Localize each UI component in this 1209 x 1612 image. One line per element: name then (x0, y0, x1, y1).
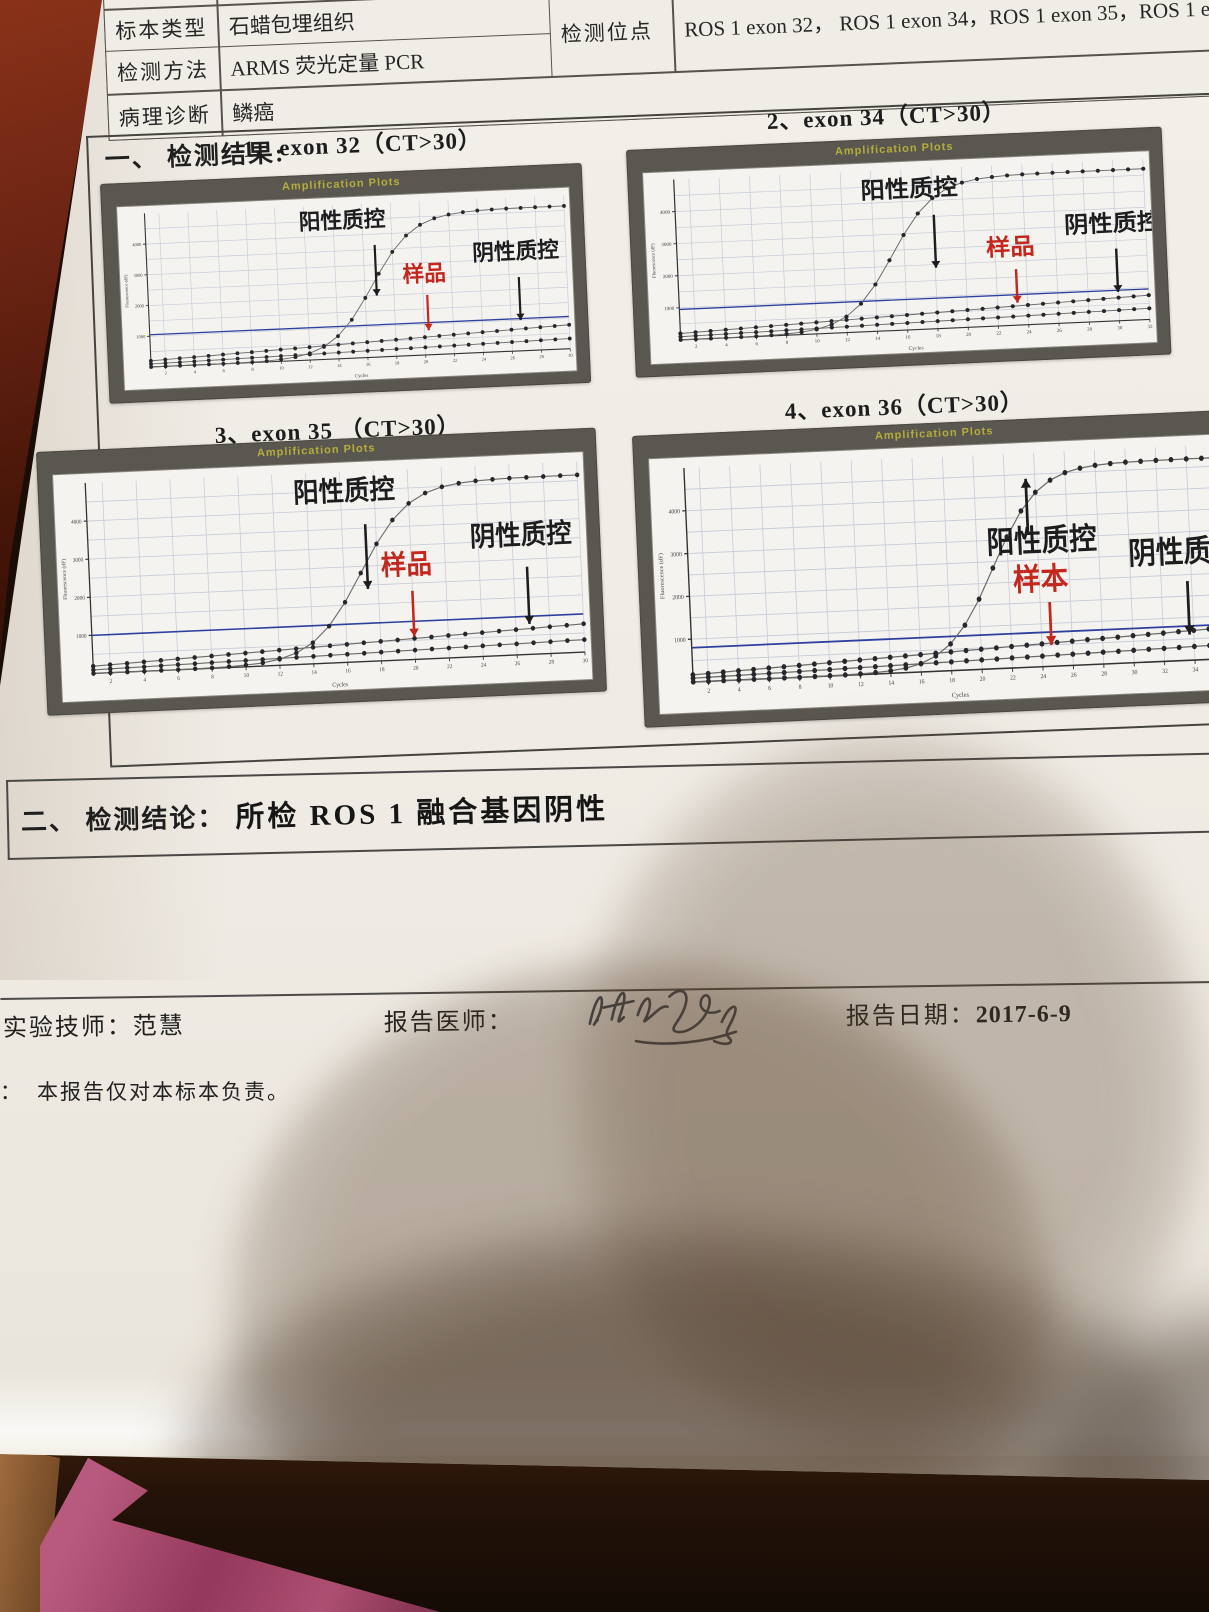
svg-text:Fluorescence (dF): Fluorescence (dF) (60, 558, 69, 600)
svg-text:16: 16 (919, 679, 925, 686)
svg-text:28: 28 (1101, 671, 1107, 678)
svg-text:4000: 4000 (71, 519, 82, 526)
plot3-area: 1000200030004000246810121416182022242628… (53, 452, 592, 702)
svg-text:30: 30 (568, 353, 573, 358)
annotation-样品: 样品 (380, 548, 435, 638)
svg-text:18: 18 (936, 334, 942, 339)
svg-text:10: 10 (815, 339, 821, 344)
svg-text:10: 10 (244, 673, 250, 679)
svg-text:30: 30 (1132, 670, 1138, 677)
svg-text:阴性质控: 阴性质控 (469, 517, 572, 552)
svg-text:阳性质控: 阳性质控 (293, 473, 396, 508)
svg-text:8: 8 (251, 367, 254, 372)
annotation-阳性质控: 阳性质控 (860, 173, 962, 271)
svg-text:4: 4 (143, 677, 146, 683)
svg-text:26: 26 (510, 355, 515, 360)
svg-text:2: 2 (695, 345, 698, 350)
svg-text:22: 22 (1010, 675, 1016, 682)
svg-text:2000: 2000 (672, 595, 684, 602)
svg-text:样品: 样品 (402, 260, 446, 287)
chart4-title: exon 36（CT>30） (821, 389, 1025, 422)
svg-text:阴性质控: 阴性质控 (472, 237, 560, 266)
chart1-title: exon 32（CT>30） (279, 127, 483, 160)
chart4-number: 4、 (784, 398, 821, 424)
plot4-svg: 1000200030004000246810121416182022242628… (649, 434, 1209, 714)
svg-text:6: 6 (755, 342, 758, 347)
report-date-value: 2017-6-9 (976, 1001, 1072, 1028)
svg-text:2: 2 (109, 679, 112, 685)
amplification-plot-slide-2: Amplification Plots 10002000300040002468… (626, 127, 1171, 378)
svg-text:Cycles: Cycles (908, 345, 923, 351)
field-test-sites-label: 检测位点 (549, 0, 674, 76)
svg-text:8: 8 (211, 674, 214, 680)
svg-text:阴性质控: 阴性质控 (1064, 208, 1157, 239)
svg-text:24: 24 (481, 357, 486, 362)
svg-text:样本: 样本 (1012, 560, 1069, 598)
physician-field: 报告医师： (384, 1001, 514, 1038)
footer-row: 实验技师：范慧 报告医师： 报告日期：2017-6-9 (0, 951, 1209, 1078)
svg-text:2: 2 (165, 370, 168, 375)
svg-text:14: 14 (311, 670, 317, 676)
svg-text:6: 6 (177, 676, 180, 682)
report-date-label: 报告日期： (846, 1002, 976, 1030)
svg-text:Fluorescence (dF): Fluorescence (dF) (651, 243, 658, 278)
svg-text:2000: 2000 (74, 595, 85, 602)
svg-text:阳性质控: 阳性质控 (860, 173, 959, 204)
svg-text:22: 22 (453, 358, 458, 363)
svg-text:8: 8 (786, 341, 789, 346)
svg-text:3000: 3000 (661, 243, 672, 248)
svg-text:28: 28 (549, 659, 555, 665)
svg-text:12: 12 (858, 682, 864, 689)
svg-text:1000: 1000 (674, 638, 686, 645)
photo-of-lab-report: 科别 送检医师 标本类型 石蜡包埋组织 检测位点 ROS 1 exon 32， … (0, 0, 1209, 1612)
svg-text:3000: 3000 (134, 273, 144, 278)
svg-text:16: 16 (345, 668, 351, 674)
svg-text:1000: 1000 (136, 334, 146, 339)
svg-text:14: 14 (875, 337, 881, 342)
svg-text:12: 12 (278, 671, 284, 677)
svg-text:阳性质控: 阳性质控 (298, 206, 386, 235)
svg-text:4000: 4000 (132, 242, 142, 247)
svg-text:28: 28 (539, 354, 544, 359)
svg-text:2000: 2000 (135, 303, 145, 308)
svg-text:26: 26 (515, 661, 521, 667)
svg-text:18: 18 (949, 678, 955, 685)
svg-text:2: 2 (707, 689, 710, 695)
svg-text:2000: 2000 (663, 275, 674, 280)
svg-text:4000: 4000 (660, 211, 671, 216)
svg-text:样品: 样品 (380, 548, 432, 581)
conclusion-label: 二、 检测结论： (20, 797, 225, 839)
chart1-number: 1、 (242, 136, 279, 162)
footnote-text: 本报告仅对本标本负责。 (37, 1080, 290, 1104)
annotation-阴性质控: 阴性质控 (469, 517, 575, 626)
svg-text:Cycles: Cycles (952, 691, 970, 699)
technician-field: 实验技师：范慧 (3, 1005, 185, 1043)
svg-text:Fluorescence (dF): Fluorescence (dF) (123, 274, 129, 308)
svg-text:Cycles: Cycles (355, 374, 369, 380)
svg-text:26: 26 (1071, 673, 1077, 680)
svg-text:4: 4 (194, 369, 197, 374)
svg-text:1000: 1000 (76, 633, 87, 640)
svg-text:12: 12 (845, 338, 851, 343)
plot2-area: 1000200030004000246810121416182022242628… (643, 151, 1157, 364)
svg-text:16: 16 (366, 362, 371, 367)
svg-text:20: 20 (980, 676, 986, 683)
svg-text:4: 4 (725, 343, 728, 348)
svg-text:Cycles: Cycles (332, 682, 349, 689)
svg-text:26: 26 (1057, 329, 1063, 334)
field-method-label: 检测方法 (106, 47, 220, 93)
amplification-plot-slide-1: Amplification Plots 10002000300040002468… (100, 163, 591, 404)
svg-text:20: 20 (966, 333, 972, 338)
paper-bottom-edge-highlight (0, 1372, 1209, 1456)
plot2-svg: 1000200030004000246810121416182022242628… (643, 151, 1157, 364)
svg-text:18: 18 (379, 667, 385, 673)
threshold-line (92, 614, 583, 635)
annotation-阴性质控: 阴性质控 (1064, 208, 1157, 294)
svg-text:20: 20 (424, 359, 429, 364)
plot1-area: 1000200030004000246810121416182022242628… (117, 188, 577, 391)
series-样品 (148, 323, 572, 363)
svg-text:3000: 3000 (670, 552, 682, 559)
svg-text:1000: 1000 (664, 307, 675, 312)
svg-text:16: 16 (905, 336, 911, 341)
annotation-阴性质控: 阴性质控 (472, 237, 562, 322)
svg-text:4000: 4000 (669, 509, 681, 516)
plot4-area: 1000200030004000246810121416182022242628… (649, 434, 1209, 714)
svg-text:样品: 样品 (985, 232, 1035, 261)
plot3-svg: 1000200030004000246810121416182022242628… (53, 452, 592, 702)
svg-text:20: 20 (413, 665, 419, 671)
field-specimen-type-label: 标本类型 (105, 6, 219, 50)
threshold-line (150, 316, 569, 334)
svg-text:10: 10 (828, 683, 834, 690)
footnote: ：本报告仅对本标本负责。 (0, 1076, 290, 1106)
plot1-svg: 1000200030004000246810121416182022242628… (117, 188, 577, 391)
annotation-样品: 样品 (402, 260, 448, 331)
svg-text:阳性质控: 阳性质控 (986, 521, 1098, 560)
svg-text:24: 24 (1026, 330, 1032, 335)
conclusion-text: 所检 ROS 1 融合基因阴性 (235, 785, 609, 835)
svg-text:30: 30 (583, 658, 589, 664)
svg-text:24: 24 (1040, 674, 1046, 681)
svg-text:18: 18 (395, 360, 400, 365)
svg-text:28: 28 (1087, 328, 1093, 333)
chart2-number: 2、 (766, 108, 803, 134)
svg-text:32: 32 (1148, 325, 1154, 330)
footnote-prefix: ： (0, 1080, 23, 1104)
technician-name: 范慧 (133, 1013, 185, 1040)
amplification-plot-slide-4: Amplification Plots 10002000300040002468… (632, 410, 1209, 728)
physician-label: 报告医师： (384, 1009, 514, 1037)
svg-text:30: 30 (1117, 326, 1123, 331)
svg-text:Fluorescence (dF): Fluorescence (dF) (658, 553, 667, 599)
report-date-field: 报告日期：2017-6-9 (845, 993, 1071, 1031)
svg-text:32: 32 (1162, 669, 1168, 676)
svg-text:阴性质控: 阴性质控 (1128, 532, 1209, 571)
svg-text:14: 14 (888, 680, 894, 687)
svg-text:24: 24 (481, 662, 487, 668)
svg-text:4: 4 (738, 687, 741, 693)
svg-text:3000: 3000 (73, 557, 84, 564)
svg-text:6: 6 (768, 686, 771, 692)
svg-text:22: 22 (996, 332, 1002, 337)
svg-text:34: 34 (1192, 667, 1198, 674)
technician-label: 实验技师： (3, 1014, 133, 1042)
svg-text:6: 6 (222, 368, 225, 373)
physician-signature-scribble (575, 963, 771, 1058)
svg-text:8: 8 (799, 685, 802, 691)
report-sheet: 科别 送检医师 标本类型 石蜡包埋组织 检测位点 ROS 1 exon 32， … (0, 0, 1209, 1612)
chart2-title: exon 34（CT>30） (803, 99, 1007, 132)
amplification-plot-slide-3: Amplification Plots 10002000300040002468… (36, 428, 607, 716)
svg-text:14: 14 (337, 363, 342, 368)
conclusion-section: 二、 检测结论： 所检 ROS 1 融合基因阴性 (6, 751, 1209, 860)
svg-text:10: 10 (279, 365, 284, 370)
series-样品 (90, 621, 587, 668)
svg-text:22: 22 (447, 664, 453, 670)
svg-text:12: 12 (308, 364, 313, 369)
annotation-阴性质控: 阴性质控 (1128, 532, 1209, 637)
